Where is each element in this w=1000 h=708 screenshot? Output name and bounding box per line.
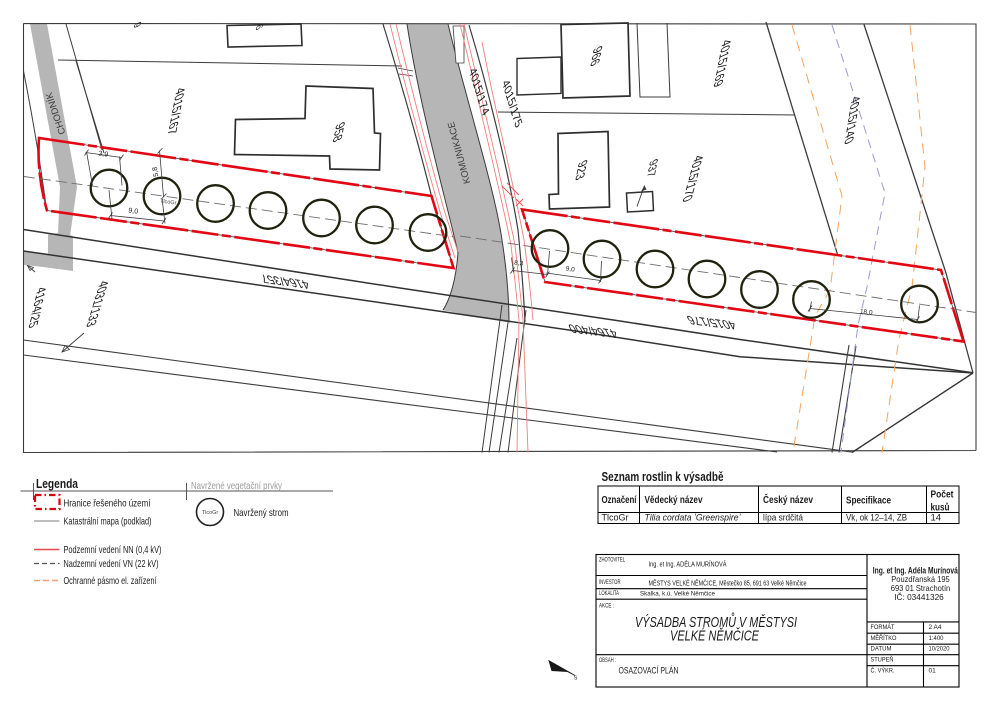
svg-text:1:400: 1:400 bbox=[929, 635, 944, 642]
svg-text:Označení: Označení bbox=[602, 495, 638, 506]
svg-text:Vk, ok 12–14, ZB: Vk, ok 12–14, ZB bbox=[846, 513, 907, 524]
svg-text:Český název: Český název bbox=[763, 493, 813, 506]
svg-text:Ochranné pásmo el. zařízení: Ochranné pásmo el. zařízení bbox=[64, 575, 157, 587]
svg-text:Navržený strom: Navržený strom bbox=[234, 507, 289, 519]
svg-text:Tilia cordata ʼGreenspireʼ: Tilia cordata ʼGreenspireʼ bbox=[645, 513, 742, 524]
svg-text:INVESTOR: INVESTOR bbox=[599, 580, 621, 586]
svg-text:Hranice řešeného území: Hranice řešeného území bbox=[64, 498, 151, 510]
svg-text:9,0: 9,0 bbox=[128, 207, 139, 215]
svg-text:Legenda: Legenda bbox=[36, 476, 79, 491]
svg-text:Skalka, k.ú. Velké Němčice: Skalka, k.ú. Velké Němčice bbox=[640, 591, 715, 598]
svg-text:MĚŘÍTKO: MĚŘÍTKO bbox=[871, 633, 897, 642]
svg-text:Specifikace: Specifikace bbox=[846, 496, 891, 507]
svg-text:2 A4: 2 A4 bbox=[929, 624, 942, 631]
svg-text:01: 01 bbox=[929, 668, 937, 675]
svg-text:Pouzdřanská 195: Pouzdřanská 195 bbox=[891, 575, 950, 584]
svg-text:STUPEŇ: STUPEŇ bbox=[871, 655, 894, 664]
svg-text:693 01 Strachotín: 693 01 Strachotín bbox=[891, 584, 951, 593]
svg-text:MĚSTYS VELKÉ NĚMČICE, Městečko: MĚSTYS VELKÉ NĚMČICE, Městečko 85, 691 6… bbox=[649, 579, 807, 588]
svg-text:Podzemní vedení NN (0,4 kV): Podzemní vedení NN (0,4 kV) bbox=[64, 544, 162, 556]
svg-text:3,9: 3,9 bbox=[98, 150, 109, 158]
svg-text:14: 14 bbox=[931, 513, 942, 524]
svg-text:Nadzemní vedení VN (22 kV): Nadzemní vedení VN (22 kV) bbox=[64, 558, 159, 570]
svg-text:TlcoGr: TlcoGr bbox=[202, 510, 219, 516]
svg-text:Č. VÝKR.: Č. VÝKR. bbox=[871, 666, 895, 675]
svg-text:IČ: 03441326: IČ: 03441326 bbox=[894, 592, 944, 602]
svg-text:Vědecký název: Vědecký název bbox=[645, 495, 703, 506]
svg-text:AKCE :: AKCE : bbox=[599, 604, 614, 610]
svg-text:Seznam rostlin k výsadbě: Seznam rostlin k výsadbě bbox=[602, 470, 724, 484]
svg-text:9,0: 9,0 bbox=[565, 265, 575, 273]
svg-text:Katastrální mapa (podklad): Katastrální mapa (podklad) bbox=[64, 516, 152, 528]
svg-text:Počet: Počet bbox=[931, 490, 955, 501]
svg-text:OBSAH :: OBSAH : bbox=[599, 658, 616, 664]
svg-text:DATUM: DATUM bbox=[871, 646, 892, 653]
svg-text:OSAZOVACÍ PLÁN: OSAZOVACÍ PLÁN bbox=[619, 666, 679, 677]
svg-text:lípa srdčitá: lípa srdčitá bbox=[763, 513, 804, 524]
svg-text:VELKÉ NĚMČICE: VELKÉ NĚMČICE bbox=[670, 628, 760, 645]
svg-text:Ing. et Ing. Adéla Murínová: Ing. et Ing. Adéla Murínová bbox=[873, 566, 958, 576]
svg-text:ZHOTOVITEL: ZHOTOVITEL bbox=[599, 558, 625, 564]
svg-text:Navržené vegetační prvky: Navržené vegetační prvky bbox=[191, 480, 283, 492]
svg-text:FORMÁT: FORMÁT bbox=[871, 622, 895, 631]
svg-text:TlcoGr: TlcoGr bbox=[602, 513, 629, 524]
svg-text:18,0: 18,0 bbox=[859, 308, 873, 316]
svg-text:LOKALITA: LOKALITA bbox=[599, 591, 619, 597]
svg-text:Ing. et Ing. ADÉLA MURÍNOVÁ: Ing. et Ing. ADÉLA MURÍNOVÁ bbox=[649, 560, 727, 569]
svg-text:8,3: 8,3 bbox=[514, 259, 524, 267]
svg-text:10/2020: 10/2020 bbox=[929, 647, 951, 653]
